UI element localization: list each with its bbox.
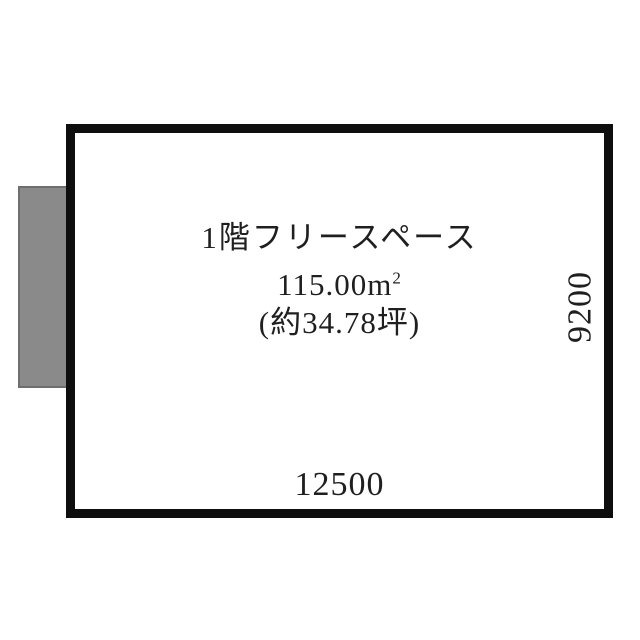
room-area-label: 115.00m2 — [66, 268, 613, 302]
room-area-value: 115.00 — [277, 267, 367, 302]
room-area-unit-sup: 2 — [392, 269, 402, 288]
floorplan-canvas: 1階フリースペース 115.00m2 (約34.78坪) 12500 9200 — [0, 0, 640, 640]
room-name-label: 1階フリースペース — [66, 221, 613, 255]
dimension-right-label: 9200 — [561, 271, 598, 343]
annex-block — [18, 186, 70, 388]
room-area-unit: m2 — [367, 267, 402, 302]
dimension-bottom-label: 12500 — [66, 466, 613, 503]
room-tsubo-label: (約34.78坪) — [66, 306, 613, 340]
room-area-unit-base: m — [367, 267, 392, 302]
